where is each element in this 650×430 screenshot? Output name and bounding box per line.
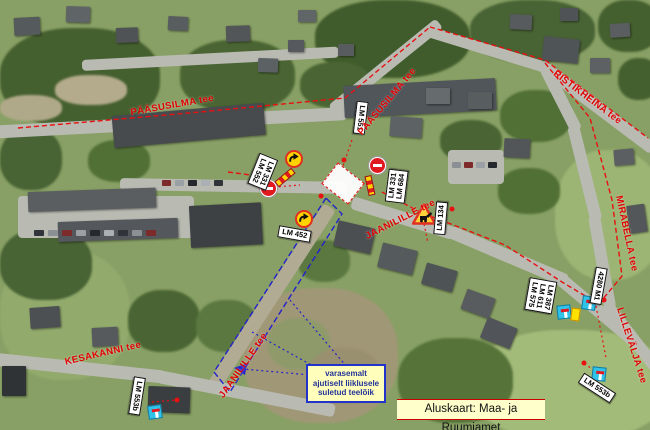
building-roof	[510, 14, 533, 30]
building-roof	[116, 27, 139, 43]
terrain-patch	[618, 58, 650, 100]
road-segment	[447, 226, 569, 288]
building-roof	[168, 16, 189, 31]
building-roof	[298, 10, 316, 22]
sign-code-label: LM 387 LM 611 LM 575	[524, 277, 557, 315]
building-roof	[2, 366, 26, 396]
barrier-board-icon	[364, 175, 375, 196]
building-roof	[66, 6, 91, 23]
parked-car	[201, 180, 210, 186]
no-entry-icon	[369, 157, 386, 174]
basemap-attribution: Aluskaart: Maa- ja Ruumiamet	[397, 399, 545, 420]
building-roof	[590, 58, 610, 73]
parked-car	[62, 230, 72, 236]
parked-car	[146, 230, 156, 236]
parked-car	[90, 230, 100, 236]
parked-car	[488, 162, 497, 168]
sign-code-line: LM 684	[395, 173, 406, 199]
note-line: suletud teelõik	[309, 388, 383, 398]
terrain-patch	[55, 75, 127, 105]
building-roof	[504, 138, 531, 158]
parked-car	[104, 230, 114, 236]
dead-end-icon	[556, 304, 571, 319]
building-roof	[258, 58, 278, 73]
building-roof	[92, 327, 119, 347]
building-roof	[460, 289, 495, 319]
detour-arrow-icon	[295, 210, 313, 228]
parked-car	[34, 230, 44, 236]
sign-code-label: LM 553b	[128, 376, 146, 415]
building-roof	[542, 36, 580, 64]
parked-car	[118, 230, 128, 236]
building-roof	[560, 8, 578, 21]
building-roof	[389, 116, 422, 138]
building-roof	[613, 148, 634, 166]
building-roof	[468, 92, 492, 109]
parked-car	[162, 180, 171, 186]
closure-note-box: varasemalt ajutiselt liiklusele suletud …	[306, 364, 386, 403]
note-line: ajutiselt liiklusele	[309, 379, 383, 389]
building-roof	[610, 23, 631, 38]
parked-car	[214, 180, 223, 186]
note-line: varasemalt	[309, 369, 383, 379]
building-roof	[226, 25, 251, 42]
terrain-patch	[498, 168, 560, 214]
dead-end-icon	[147, 404, 163, 420]
parked-car	[175, 180, 184, 186]
building-roof	[14, 17, 41, 36]
building-roof	[338, 44, 354, 56]
sign-back-panel	[570, 307, 581, 321]
building-roof	[288, 40, 304, 52]
building-roof	[29, 306, 60, 329]
parked-car	[48, 230, 58, 236]
parked-car	[476, 162, 485, 168]
building-roof	[189, 202, 263, 248]
parked-car	[452, 162, 461, 168]
traffic-management-map: LM 551 LM 331 LM 552 LM 331 LM 684 LM 45…	[0, 0, 650, 430]
parked-car	[464, 162, 473, 168]
building-roof	[421, 262, 458, 292]
building-roof	[377, 242, 418, 275]
detour-arrow-icon	[285, 150, 303, 168]
parked-car	[132, 230, 142, 236]
building-roof	[426, 88, 450, 104]
terrain-patch	[0, 95, 62, 121]
sign-code-label: LM 331 LM 684	[385, 168, 409, 204]
parked-car	[188, 180, 197, 186]
parked-car	[76, 230, 86, 236]
